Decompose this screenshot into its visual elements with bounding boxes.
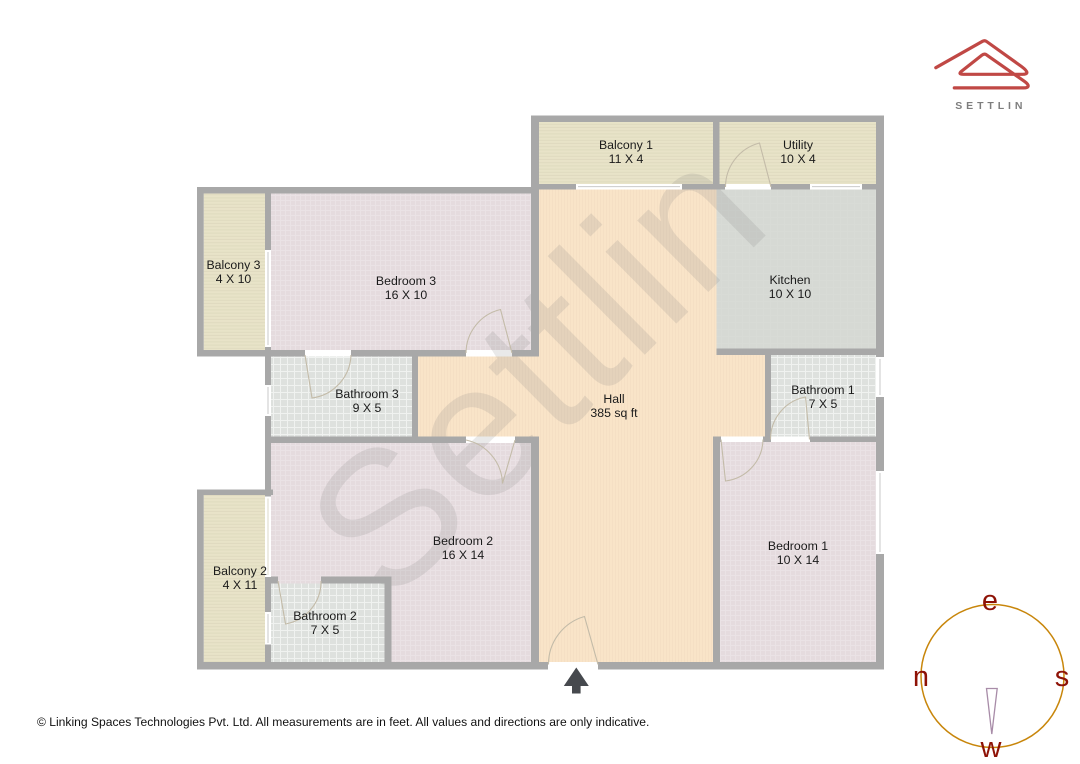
svg-text:s: s xyxy=(1055,661,1070,693)
svg-text:Bathroom 2: Bathroom 2 xyxy=(293,609,357,623)
svg-text:n: n xyxy=(913,661,929,693)
svg-text:Hall: Hall xyxy=(603,392,624,406)
svg-text:Bedroom 3: Bedroom 3 xyxy=(376,274,436,288)
svg-text:Bedroom 1: Bedroom 1 xyxy=(768,539,828,553)
svg-text:10 X 14: 10 X 14 xyxy=(777,553,820,567)
svg-text:385 sq ft: 385 sq ft xyxy=(590,406,638,420)
svg-text:Balcony 2: Balcony 2 xyxy=(213,564,267,578)
svg-text:Utility: Utility xyxy=(783,138,814,152)
svg-text:Bedroom 2: Bedroom 2 xyxy=(433,534,493,548)
svg-text:Bathroom 1: Bathroom 1 xyxy=(791,383,855,397)
svg-text:4 X 11: 4 X 11 xyxy=(223,578,258,592)
svg-text:11 X 4: 11 X 4 xyxy=(609,152,644,166)
svg-text:16 X 10: 16 X 10 xyxy=(385,288,428,302)
svg-text:Bathroom 3: Bathroom 3 xyxy=(335,387,399,401)
svg-text:9 X 5: 9 X 5 xyxy=(353,401,382,415)
svg-text:7 X 5: 7 X 5 xyxy=(311,623,340,637)
svg-text:Kitchen: Kitchen xyxy=(769,273,810,287)
svg-text:© Linking Spaces Technologies: © Linking Spaces Technologies Pvt. Ltd. … xyxy=(37,715,649,729)
svg-text:7 X 5: 7 X 5 xyxy=(809,397,838,411)
svg-text:10 X 4: 10 X 4 xyxy=(780,152,816,166)
svg-text:16 X 14: 16 X 14 xyxy=(442,548,485,562)
svg-text:Balcony 1: Balcony 1 xyxy=(599,138,653,152)
svg-text:SETTLIN: SETTLIN xyxy=(955,100,1026,112)
svg-text:e: e xyxy=(982,585,998,617)
svg-text:Balcony 3: Balcony 3 xyxy=(206,258,260,272)
svg-text:w: w xyxy=(980,732,1003,764)
svg-text:10 X 10: 10 X 10 xyxy=(769,287,812,301)
svg-text:4 X 10: 4 X 10 xyxy=(216,272,252,286)
